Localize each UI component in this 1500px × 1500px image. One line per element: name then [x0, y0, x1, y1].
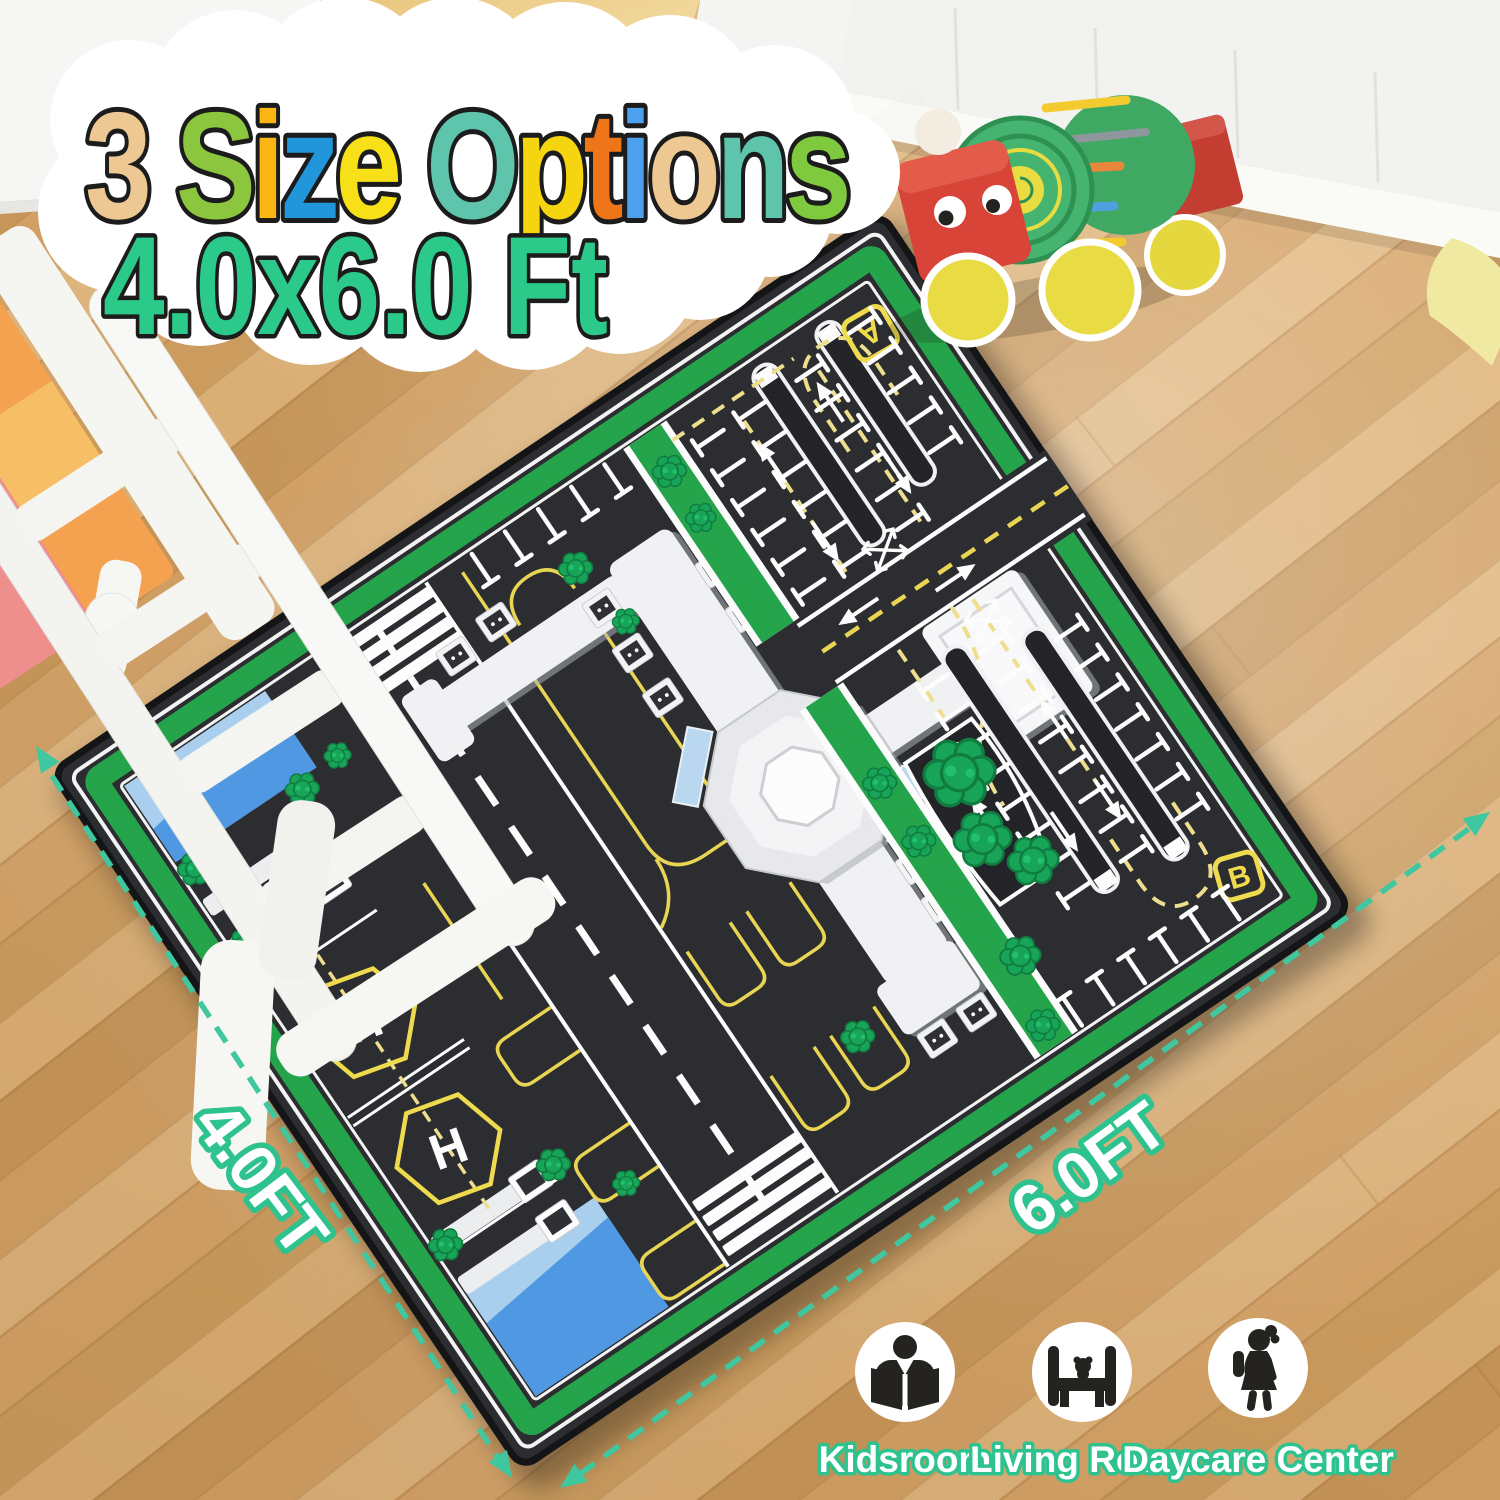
size-label: 4.0x6.0 Ft — [103, 207, 608, 364]
product-photo: H H — [0, 0, 1500, 1500]
usage-badge — [855, 1322, 955, 1422]
train-wheel — [924, 256, 1012, 344]
train-bead — [915, 109, 961, 155]
usage-badge — [1032, 1322, 1132, 1422]
usage-badge-label: Daycare Center — [1122, 1439, 1393, 1480]
usage-badge-label: Kidsroom — [819, 1439, 992, 1480]
train-wheel — [1042, 242, 1138, 338]
usage-badge — [1208, 1318, 1308, 1418]
scene: H H — [0, 0, 1500, 1500]
